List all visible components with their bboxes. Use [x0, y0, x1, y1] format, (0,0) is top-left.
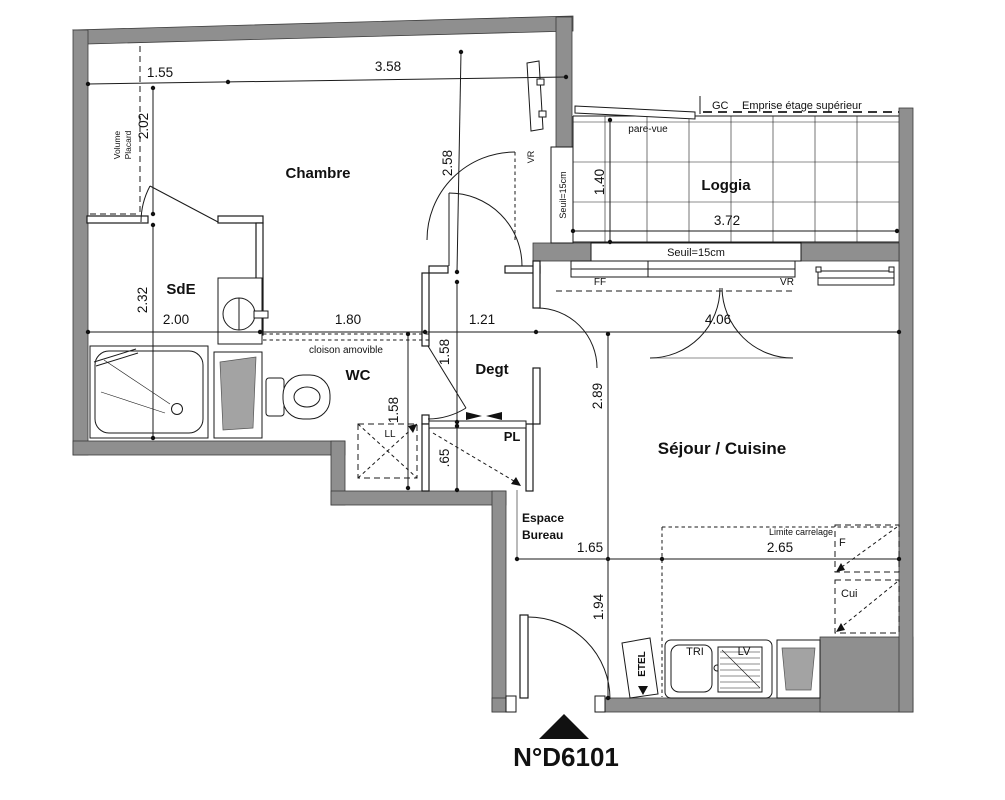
washer-shading	[220, 357, 256, 430]
dim-2-00: 2.00	[163, 312, 189, 327]
vr-sejour-label: VR	[780, 277, 794, 288]
dim-3-72: 3.72	[714, 213, 740, 228]
vr-chambre-label: VR	[526, 150, 536, 163]
partition-degt-sejour-lower	[533, 368, 540, 424]
entrance-door-swing	[528, 617, 610, 699]
dim-1-55: 1.55	[147, 65, 173, 80]
pare-vue-screen	[575, 106, 695, 119]
room-label-degt: Degt	[475, 361, 508, 378]
dim-line-2-58	[457, 52, 461, 272]
dim-1-58-degt: 1.58	[437, 339, 452, 365]
cloison-label: cloison amovible	[309, 345, 383, 356]
pl-sliding-track	[429, 421, 526, 428]
room-label-pl: PL	[504, 429, 521, 444]
partition-chambre-sde-right	[218, 216, 263, 223]
partition-chambre-sde-left	[87, 216, 148, 223]
dim-2-58: 2.58	[440, 150, 455, 176]
room-label-sde: SdE	[166, 281, 195, 298]
chambre-degt-door-swing	[449, 193, 522, 266]
floor-plan-page: GC Emprise étage supérieur pare-vue Logg…	[0, 0, 1005, 800]
wall-pl-bottom	[331, 491, 506, 505]
espace-bureau-line2: Bureau	[522, 528, 563, 542]
dim-1-58-wc: 1.58	[386, 397, 401, 423]
volume-placard-line2: Placard	[123, 130, 133, 159]
room-label-wc: WC	[346, 367, 371, 384]
tri-label: TRI	[686, 646, 704, 658]
dim-1-94: 1.94	[591, 593, 606, 620]
room-label-sejour: Séjour / Cuisine	[658, 439, 786, 458]
seuil-loggia-door-label: Seuil=15cm	[558, 171, 568, 218]
emprise-label: Emprise étage supérieur	[742, 100, 862, 112]
limite-carrelage-label: Limite carrelage	[769, 527, 833, 537]
frigo-arrowhead	[836, 563, 845, 572]
chambre-wall-radiator	[527, 61, 543, 131]
dim-3-58: 3.58	[375, 59, 401, 74]
partition-ll-pl	[422, 424, 429, 491]
dim-2-32: 2.32	[135, 287, 150, 313]
partition-wc-degt-upper	[422, 273, 429, 346]
ff-label: FF	[594, 277, 606, 288]
dim-2-65: 2.65	[767, 540, 793, 555]
ll-label: LL	[384, 429, 396, 440]
room-label-chambre: Chambre	[285, 165, 350, 182]
lv-label: LV	[738, 646, 751, 658]
entrance-jamb-right	[595, 696, 605, 712]
degt-wc-door-swing	[428, 408, 466, 419]
washbasin-tap	[254, 311, 268, 318]
frigo-label: F	[839, 537, 846, 549]
dim-065: .65	[437, 449, 452, 468]
partition-degt-north-a	[429, 266, 448, 273]
espace-bureau-line1: Espace	[522, 511, 564, 525]
toilet-bowl	[283, 375, 330, 419]
wall-left	[73, 30, 88, 455]
dim-1-65: 1.65	[577, 540, 603, 555]
sejour-radiator-bracket-right	[889, 267, 894, 272]
dim-2-02: 2.02	[136, 113, 151, 139]
radiator-tab-bottom	[539, 111, 546, 117]
pl-slide-arrow-right	[466, 412, 482, 420]
wall-top	[73, 16, 573, 44]
shower-tray	[95, 351, 203, 433]
partition-wc-degt-lower	[422, 415, 429, 424]
gc-label: GC	[712, 100, 729, 112]
shower-drain	[172, 404, 183, 415]
floor-plan-drawing: GC Emprise étage supérieur pare-vue Logg…	[0, 0, 1005, 800]
sde-door-leaf	[150, 186, 218, 222]
entrance-door-leaf	[520, 615, 528, 698]
sejour-radiator-bracket-left	[816, 267, 821, 272]
seuil-loggia-edge-label: Seuil=15cm	[667, 247, 725, 259]
dim-1-40: 1.40	[592, 169, 607, 195]
plan-title-block: N°D6101	[513, 714, 619, 772]
plan-title: N°D6101	[513, 742, 619, 772]
wall-right	[899, 108, 913, 712]
appliance-shading	[782, 648, 815, 690]
dim-2-89: 2.89	[590, 383, 605, 409]
pl-slide-arrow-left	[486, 412, 502, 420]
ll-arrowhead	[408, 424, 417, 433]
etel-label: ETEL	[637, 651, 648, 677]
entrance-jamb-left	[506, 696, 516, 712]
wall-sde-bottom	[73, 441, 345, 455]
degt-sejour-door-swing	[537, 308, 597, 368]
dim-4-06: 4.06	[705, 312, 731, 327]
volume-placard-line1: Volume	[112, 131, 122, 160]
cui-arrowhead	[836, 623, 845, 632]
french-door-swing-right	[722, 288, 793, 358]
cui-label: Cui	[841, 588, 858, 600]
partition-degt-sejour-upper	[533, 261, 540, 308]
frigo-diagonal	[839, 527, 897, 569]
entrance-marker-triangle	[539, 714, 589, 739]
dim-1-80: 1.80	[335, 312, 361, 327]
room-labels: Chambre SdE WC Degt Séjour / Cuisine Esp…	[112, 130, 786, 542]
wall-corridor-left	[492, 491, 506, 712]
dim-1-21: 1.21	[469, 312, 495, 327]
partition-pl-east	[526, 424, 533, 491]
wall-chambre-east	[556, 17, 572, 150]
toilet-tank	[266, 378, 284, 416]
room-label-loggia: Loggia	[701, 177, 751, 194]
pl-arrowhead	[511, 477, 521, 486]
pare-vue-label: pare-vue	[628, 124, 668, 135]
radiator-tab-top	[537, 79, 544, 85]
